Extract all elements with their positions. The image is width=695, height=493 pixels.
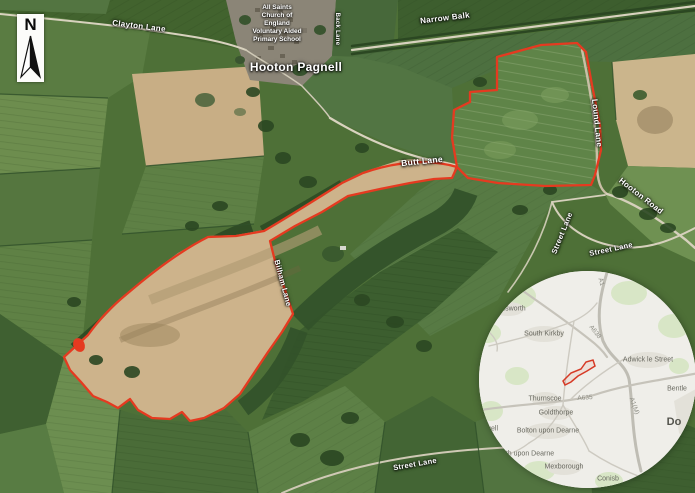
inset-town-south-kirkby: South Kirkby <box>524 331 564 338</box>
inset-town-conisbrough: Conisb <box>597 476 619 483</box>
inset-town-doncaster: Do <box>667 416 682 428</box>
place-label-village: Hooton Pagnell <box>250 60 342 74</box>
place-label-school: All Saints Church of England Voluntary A… <box>252 4 301 44</box>
inset-town-adwick-le-street: Adwick le Street <box>623 357 673 364</box>
north-letter: N <box>24 16 36 34</box>
inset-town-bolton-upon-dearne: Bolton upon Dearne <box>517 428 579 435</box>
inset-town-bentley: Bentle <box>667 386 687 393</box>
aerial-site-map: Clayton Lane Narrow Balk Back Lane All S… <box>0 0 695 493</box>
inset-town-thurnscoe: Thurnscoe <box>528 396 561 403</box>
location-inset-map: Hemsworth South Kirkby Adwick le Street … <box>479 271 695 488</box>
inset-town-mexborough: Mexborough <box>545 464 584 471</box>
north-arrow-icon <box>17 34 44 80</box>
inset-town-wath-upon-dearne: th upon Dearne <box>506 451 554 458</box>
inset-town-fragment-well: well <box>486 426 498 433</box>
road-label-back-lane: Back Lane <box>334 13 340 46</box>
school-line: All Saints <box>252 4 301 12</box>
inset-town-hemsworth: Hemsworth <box>490 306 525 313</box>
school-line: Primary School <box>252 36 301 44</box>
school-line: England <box>252 20 301 28</box>
north-arrow: N <box>17 14 44 82</box>
inset-town-goldthorpe: Goldthorpe <box>539 410 574 417</box>
inset-road-a635: A635 <box>577 394 593 402</box>
school-line: Voluntary Aided <box>252 28 301 36</box>
school-line: Church of <box>252 12 301 20</box>
